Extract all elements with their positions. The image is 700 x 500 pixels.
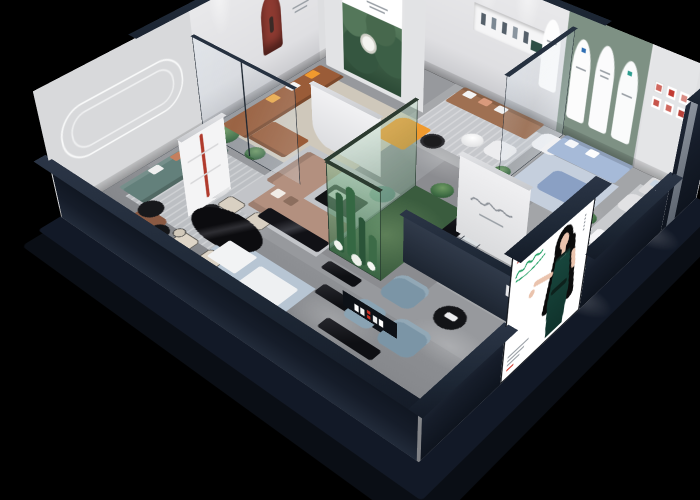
- showroom-render: [0, 0, 700, 500]
- round-emblem: [360, 31, 376, 57]
- sign-glyph: [360, 307, 364, 316]
- poster-text: [576, 66, 586, 72]
- script-logo: [468, 186, 518, 230]
- sign-glyph: [379, 319, 383, 328]
- poster-logo: [581, 47, 586, 53]
- print-art: [668, 89, 675, 97]
- red-trim: [199, 133, 210, 198]
- wall-spotlight: [208, 0, 233, 39]
- mini-frame: [523, 31, 529, 44]
- woman-hand: [528, 288, 534, 300]
- glass-mullion: [240, 62, 250, 161]
- red-arched-niche: [260, 0, 283, 57]
- miniature-decor: [443, 312, 458, 322]
- niche-figurine: [269, 16, 274, 34]
- woman-arm: [571, 247, 575, 269]
- red-framed-print: [654, 80, 665, 95]
- floor-plan: [61, 38, 697, 463]
- red-framed-print: [663, 101, 674, 116]
- mini-frame: [491, 17, 496, 30]
- sign-glyph: [354, 304, 358, 313]
- cactus: [346, 185, 356, 261]
- print-art: [665, 104, 671, 112]
- sign-glyph: [373, 315, 377, 324]
- mini-frame: [481, 13, 486, 26]
- poster-logo: [627, 71, 632, 77]
- print-art: [653, 99, 659, 107]
- red-framed-print: [651, 96, 662, 111]
- arched-poster: [610, 57, 641, 145]
- vertical-caption: [583, 213, 587, 230]
- print-art: [656, 84, 662, 92]
- red-framed-print: [666, 86, 677, 101]
- poster-text: [622, 93, 632, 99]
- poster-text: [600, 75, 609, 80]
- mini-frame: [512, 26, 518, 39]
- mini-frame: [502, 22, 507, 35]
